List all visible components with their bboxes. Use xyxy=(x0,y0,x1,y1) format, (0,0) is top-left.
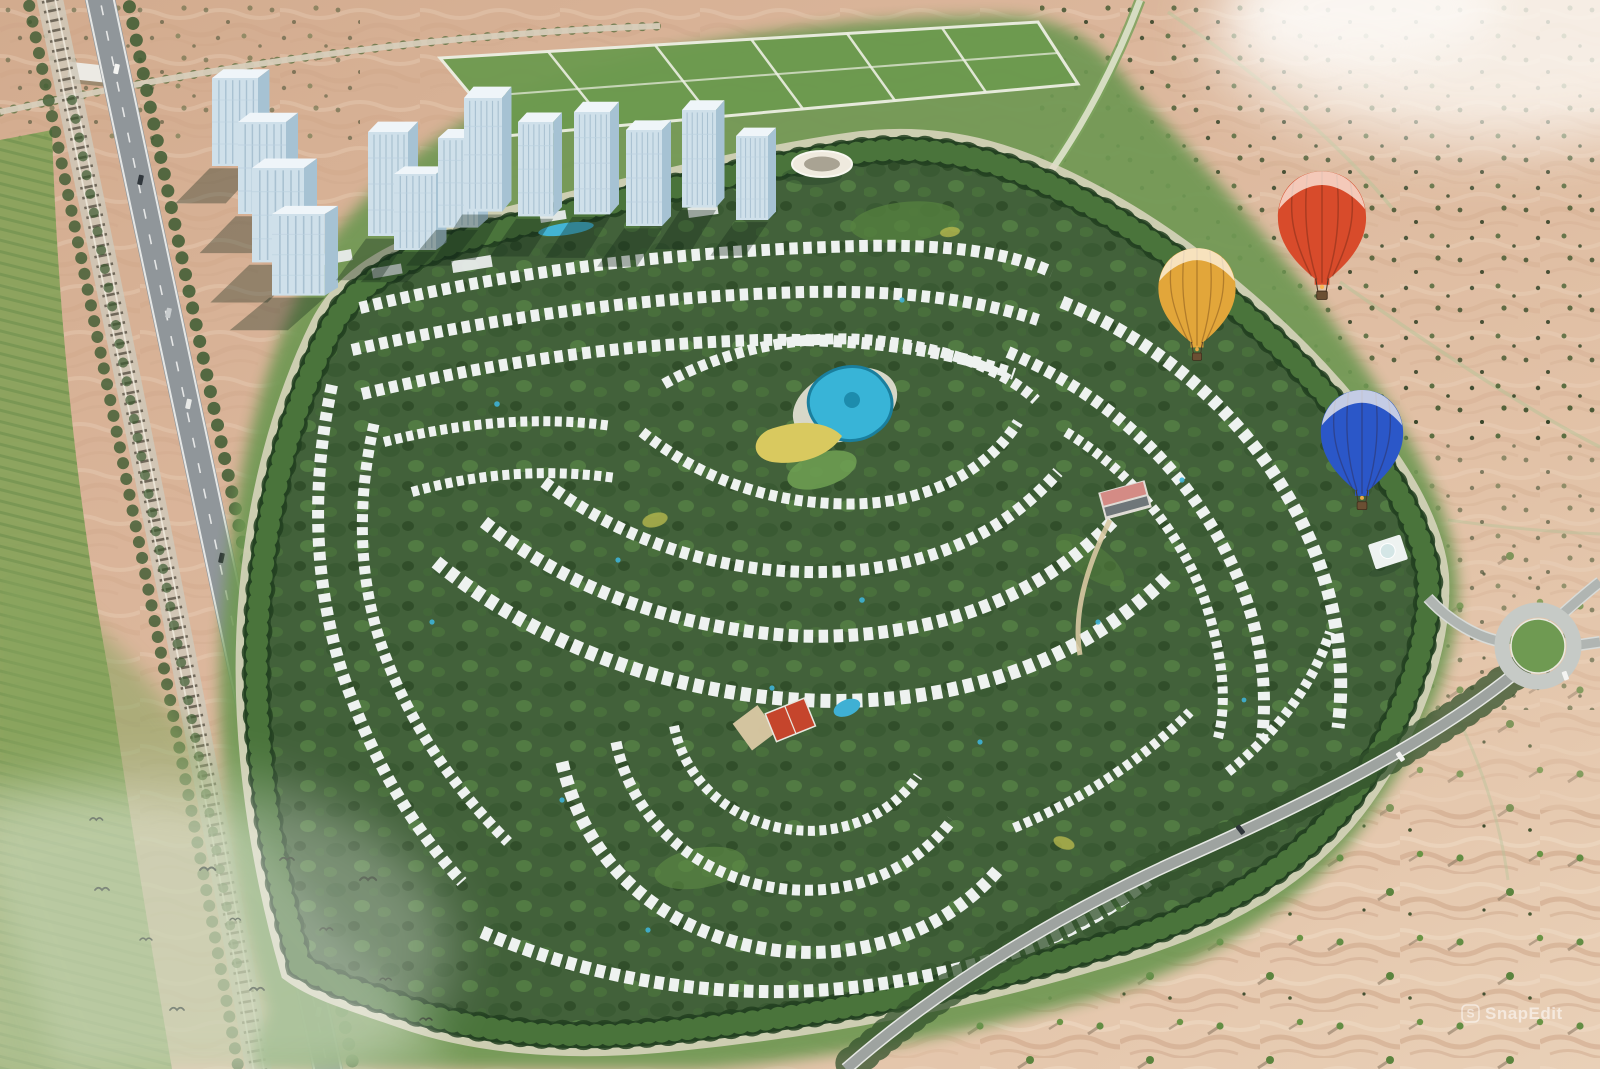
snapedit-logo-letter: S xyxy=(1466,1007,1474,1021)
lagoon-deep-end xyxy=(844,392,860,408)
watermark-text: SnapEdit xyxy=(1485,1004,1563,1023)
aerial-masterplan-photo: S SnapEdit xyxy=(0,0,1600,1069)
snapedit-watermark: S SnapEdit xyxy=(1462,1004,1563,1023)
roundabout-island xyxy=(1511,619,1565,673)
